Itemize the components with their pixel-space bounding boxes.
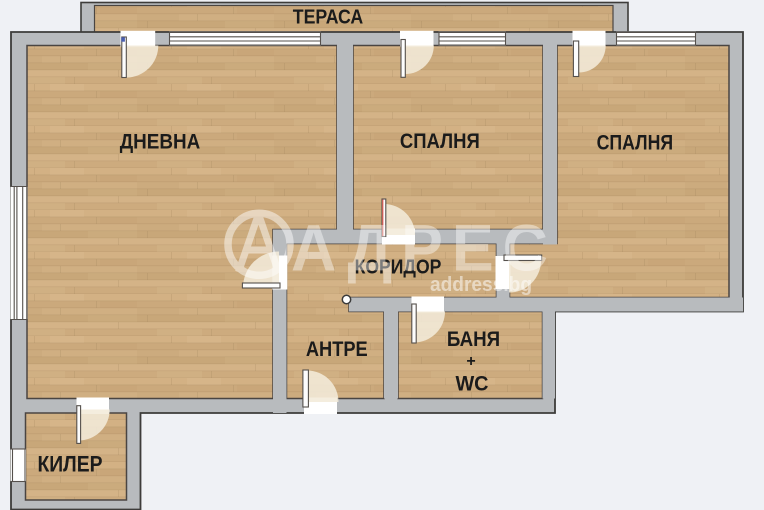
svg-text:СПАЛНЯ: СПАЛНЯ: [400, 129, 480, 153]
svg-text:КИЛЕР: КИЛЕР: [38, 452, 103, 477]
svg-text:СПАЛНЯ: СПАЛНЯ: [597, 130, 674, 154]
svg-text:ДНЕВНА: ДНЕВНА: [120, 129, 201, 153]
svg-text:+: +: [466, 353, 475, 370]
svg-text:ТЕРАСА: ТЕРАСА: [293, 7, 364, 29]
svg-text:АНТРЕ: АНТРЕ: [306, 337, 368, 361]
svg-text:БАНЯ: БАНЯ: [447, 327, 500, 351]
svg-text:address.bg: address.bg: [430, 274, 532, 296]
svg-text:WC: WC: [455, 372, 488, 396]
